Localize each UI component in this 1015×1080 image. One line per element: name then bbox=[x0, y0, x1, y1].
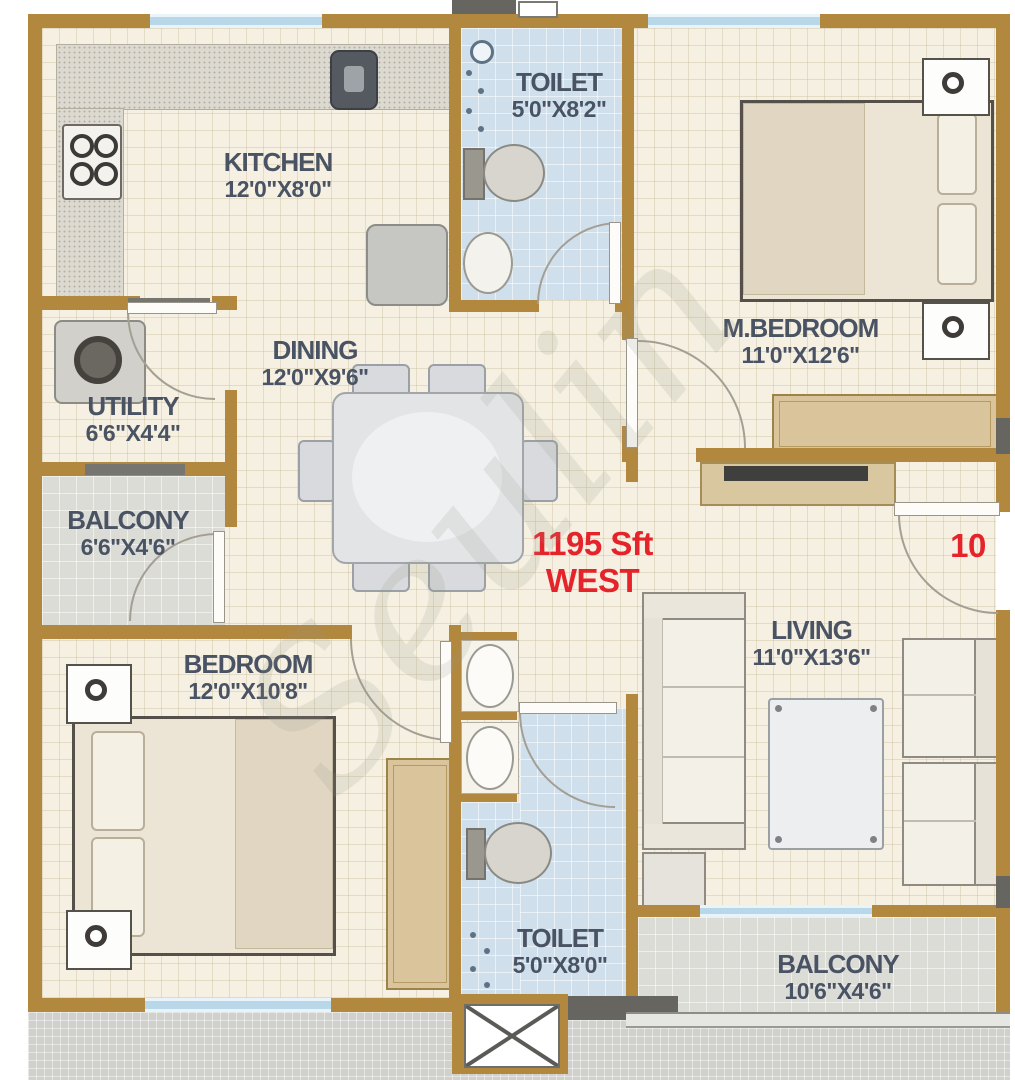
lift-icon bbox=[464, 1004, 560, 1068]
wall-kitchen-toilet bbox=[449, 14, 461, 312]
wash-basin-icon bbox=[463, 232, 513, 294]
area-facing-label: 1195 Sft WEST bbox=[505, 526, 680, 600]
label-balcony-bottom: BALCONY 10'6"X4'6" bbox=[738, 950, 938, 1005]
label-toilet-bottom: TOILET 5'0"X8'0" bbox=[474, 924, 646, 979]
wc-tank-bottom bbox=[466, 828, 486, 880]
dining-chair-icon bbox=[520, 440, 558, 502]
door-leaf bbox=[127, 302, 217, 314]
wall-living-stub bbox=[626, 448, 638, 482]
wash-basin-icon bbox=[466, 644, 514, 708]
nightstand-icon bbox=[66, 664, 132, 724]
armchair-icon bbox=[902, 638, 998, 758]
wall-basin-divider bbox=[455, 794, 517, 802]
nightstand-icon bbox=[66, 910, 132, 970]
unit-number-label: 10 bbox=[940, 528, 996, 565]
label-living: LIVING 11'0"X13'6" bbox=[714, 616, 909, 671]
door-leaf bbox=[609, 222, 621, 304]
gas-stove-icon bbox=[62, 124, 122, 200]
label-dining: DINING 12'0"X9'6" bbox=[225, 336, 405, 391]
dining-chair-icon bbox=[298, 440, 336, 502]
threshold-balcony bbox=[85, 464, 185, 475]
label-kitchen: KITCHEN 12'0"X8'0" bbox=[178, 148, 378, 203]
coffee-table-icon bbox=[768, 698, 884, 850]
duct-box bbox=[518, 1, 558, 18]
door-leaf bbox=[626, 338, 638, 448]
label-balcony-left: BALCONY 6'6"X4'6" bbox=[37, 506, 219, 561]
door-leaf bbox=[440, 641, 452, 743]
wardrobe-icon bbox=[772, 394, 998, 454]
shower-icon bbox=[470, 40, 494, 64]
nightstand-icon bbox=[922, 302, 990, 360]
wall-utility-top-a bbox=[28, 296, 140, 310]
wall-mbedroom-living bbox=[696, 448, 996, 462]
master-bed-icon bbox=[740, 100, 994, 302]
column-right-low bbox=[996, 876, 1010, 908]
area-label: 1195 Sft bbox=[505, 526, 680, 563]
window-mbedroom bbox=[648, 14, 820, 28]
column-right-mid bbox=[996, 418, 1010, 454]
wall-toilet-mbedroom bbox=[622, 14, 634, 312]
wall-basin-divider bbox=[455, 712, 517, 720]
nightstand-icon bbox=[922, 58, 990, 116]
window-bedroom bbox=[145, 998, 331, 1012]
door-leaf-entrance bbox=[894, 502, 1000, 516]
duct-column bbox=[452, 0, 516, 14]
wall-right-lower bbox=[996, 610, 1010, 1012]
window-kitchen bbox=[150, 14, 322, 28]
door-leaf bbox=[519, 702, 617, 714]
label-bedroom: BEDROOM 12'0"X10'8" bbox=[148, 650, 348, 705]
label-utility: UTILITY 6'6"X4'4" bbox=[44, 392, 222, 447]
window-living-balcony bbox=[700, 905, 872, 917]
wall-toilet-top-bottom-a bbox=[449, 300, 539, 312]
dining-table-icon bbox=[332, 392, 524, 564]
label-toilet-top: TOILET 5'0"X8'2" bbox=[473, 68, 645, 123]
floor-plan: KITCHEN 12'0"X8'0" TOILET 5'0"X8'2" M.BE… bbox=[0, 0, 1015, 1080]
fridge-icon bbox=[366, 224, 448, 306]
wc-icon bbox=[483, 144, 545, 202]
wall-basin-divider bbox=[455, 632, 517, 640]
wall-dining-bedroom bbox=[28, 625, 352, 639]
kitchen-sink-icon bbox=[330, 50, 378, 110]
wc-icon bbox=[484, 822, 552, 884]
wardrobe-icon bbox=[386, 758, 454, 990]
wall-mbedroom-left-a bbox=[622, 300, 634, 340]
lift-frame bbox=[452, 994, 568, 1074]
balcony-railing bbox=[626, 1012, 1010, 1028]
armchair-icon bbox=[902, 762, 998, 886]
label-mbedroom: M.BEDROOM 11'0"X12'6" bbox=[688, 314, 913, 369]
wc-tank-top bbox=[463, 148, 485, 200]
wall-utility-dining bbox=[225, 390, 237, 527]
kitchen-counter-top bbox=[56, 44, 451, 110]
side-table-icon bbox=[642, 852, 706, 912]
wash-basin-icon bbox=[466, 726, 514, 790]
tv-unit-icon bbox=[700, 462, 896, 506]
facing-label: WEST bbox=[505, 563, 680, 600]
